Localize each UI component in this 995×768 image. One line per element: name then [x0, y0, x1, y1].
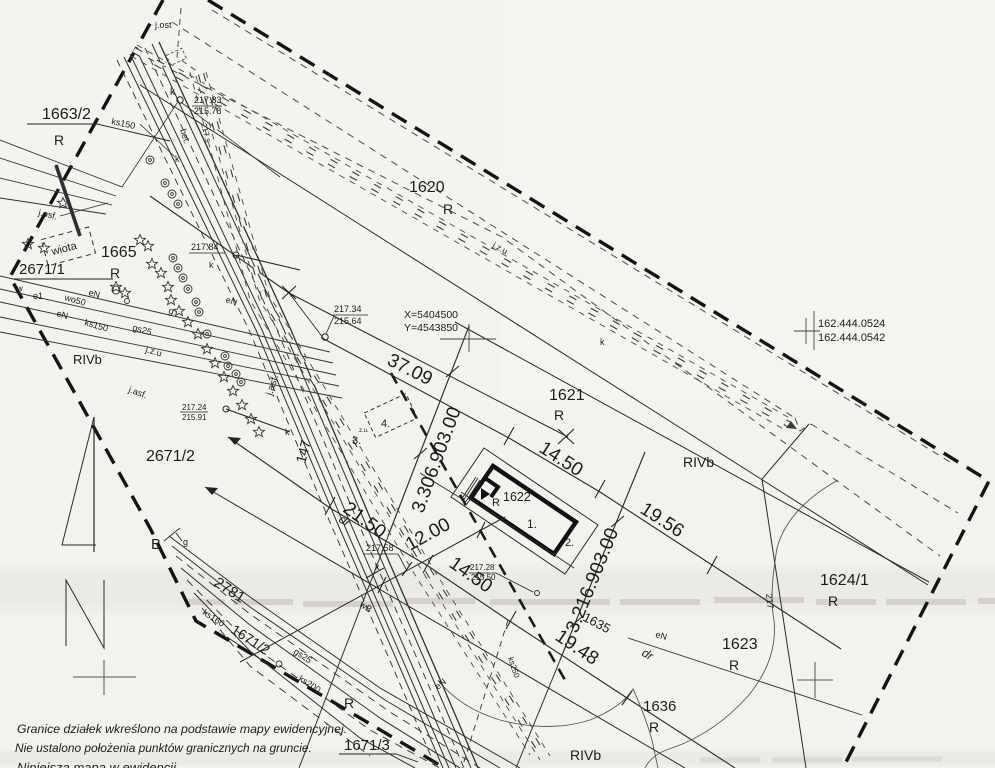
svg-text:R: R: [110, 265, 120, 281]
svg-text:Niniejsza mapa w ewidencji...: Niniejsza mapa w ewidencji...: [17, 760, 187, 768]
svg-text:215.64: 215.64: [334, 316, 362, 326]
svg-text:1624/1: 1624/1: [820, 572, 869, 589]
svg-text:B: B: [151, 536, 161, 553]
svg-text:217.24: 217.24: [182, 403, 207, 412]
svg-text:Y=4543850: Y=4543850: [404, 322, 458, 334]
svg-text:R: R: [54, 132, 64, 148]
svg-text:e1: e1: [33, 291, 43, 301]
svg-text:RIVb: RIVb: [73, 352, 102, 367]
svg-text:Nie ustalono położenia punktów: Nie ustalono położenia punktów graniczny…: [15, 741, 312, 755]
svg-text:162.444.0542: 162.444.0542: [818, 332, 885, 344]
svg-text:217.58: 217.58: [366, 543, 394, 553]
svg-text:RIVb: RIVb: [683, 454, 714, 470]
svg-text:R: R: [344, 695, 354, 711]
svg-text:R: R: [828, 593, 838, 609]
svg-text:1671/3: 1671/3: [344, 737, 390, 754]
svg-text:217.34: 217.34: [334, 304, 362, 314]
svg-text:X=5404500: X=5404500: [404, 309, 458, 321]
svg-text:j.ost: j.ost: [154, 20, 172, 30]
svg-text:2671/1: 2671/1: [19, 261, 65, 278]
svg-text:215.50: 215.50: [471, 573, 496, 582]
svg-text:1621: 1621: [549, 387, 585, 404]
svg-text:162.444.0524: 162.444.0524: [818, 318, 885, 330]
svg-text:k: k: [175, 154, 180, 164]
svg-text:1622: 1622: [503, 490, 531, 504]
svg-text:217.83: 217.83: [194, 95, 222, 105]
svg-text:3.: 3.: [352, 435, 361, 447]
svg-text:R: R: [492, 497, 500, 509]
svg-text:k: k: [600, 337, 605, 347]
svg-text:k: k: [375, 562, 380, 572]
svg-text:R: R: [554, 407, 564, 423]
svg-text:R: R: [729, 657, 739, 673]
svg-text:217.84: 217.84: [191, 242, 219, 252]
svg-text:Granice działek wkreślono na p: Granice działek wkreślono na podstawie m…: [17, 722, 347, 736]
svg-text:z.u.: z.u.: [359, 428, 369, 434]
svg-text:1663/2: 1663/2: [42, 106, 91, 123]
svg-text:k: k: [209, 260, 214, 270]
svg-text:g: g: [183, 537, 188, 547]
svg-text:215.91: 215.91: [182, 413, 207, 422]
svg-text:1623: 1623: [722, 636, 758, 653]
svg-text:4.: 4.: [381, 418, 390, 430]
svg-text:217.28: 217.28: [470, 563, 495, 572]
svg-text:2671/2: 2671/2: [146, 448, 195, 465]
svg-text:R: R: [649, 719, 659, 735]
svg-text:217: 217: [764, 593, 776, 609]
svg-text:1665: 1665: [101, 244, 137, 261]
svg-text:RIVb: RIVb: [570, 747, 601, 763]
svg-text:1620: 1620: [409, 179, 445, 196]
svg-text:2.: 2.: [565, 537, 574, 549]
svg-text:1636: 1636: [643, 698, 676, 715]
svg-text:k: k: [285, 427, 290, 437]
svg-text:1.: 1.: [527, 517, 537, 531]
svg-text:215.78: 215.78: [194, 106, 222, 116]
svg-text:w: w: [16, 284, 23, 293]
svg-text:R: R: [443, 201, 453, 217]
